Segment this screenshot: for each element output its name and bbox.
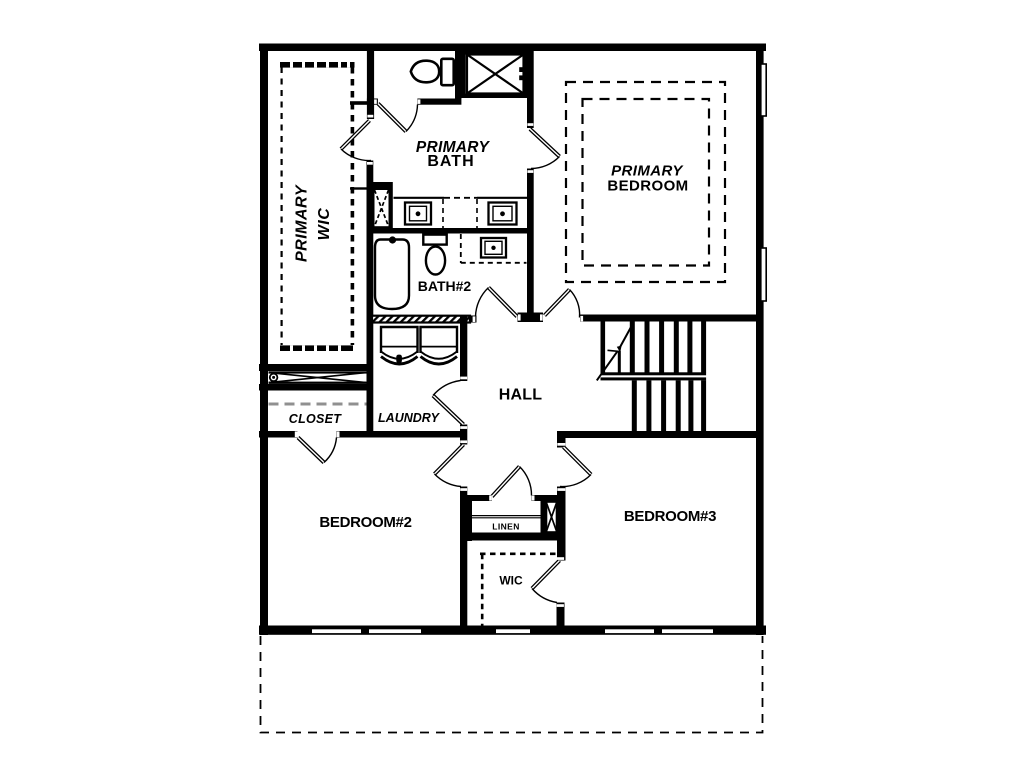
svg-text:BATH#2: BATH#2 — [418, 278, 472, 294]
svg-text:LAUNDRY: LAUNDRY — [378, 411, 441, 425]
svg-text:WIC: WIC — [316, 208, 333, 241]
svg-text:HALL: HALL — [499, 387, 542, 404]
svg-text:PRIMARY: PRIMARY — [294, 184, 311, 262]
svg-text:BEDROOM: BEDROOM — [607, 178, 688, 195]
svg-text:LINEN: LINEN — [492, 522, 520, 532]
svg-text:BATH: BATH — [427, 153, 474, 170]
svg-text:BEDROOM#3: BEDROOM#3 — [624, 508, 716, 525]
svg-text:WIC: WIC — [499, 574, 523, 588]
svg-text:CLOSET: CLOSET — [289, 412, 343, 426]
svg-text:BEDROOM#2: BEDROOM#2 — [319, 514, 411, 531]
